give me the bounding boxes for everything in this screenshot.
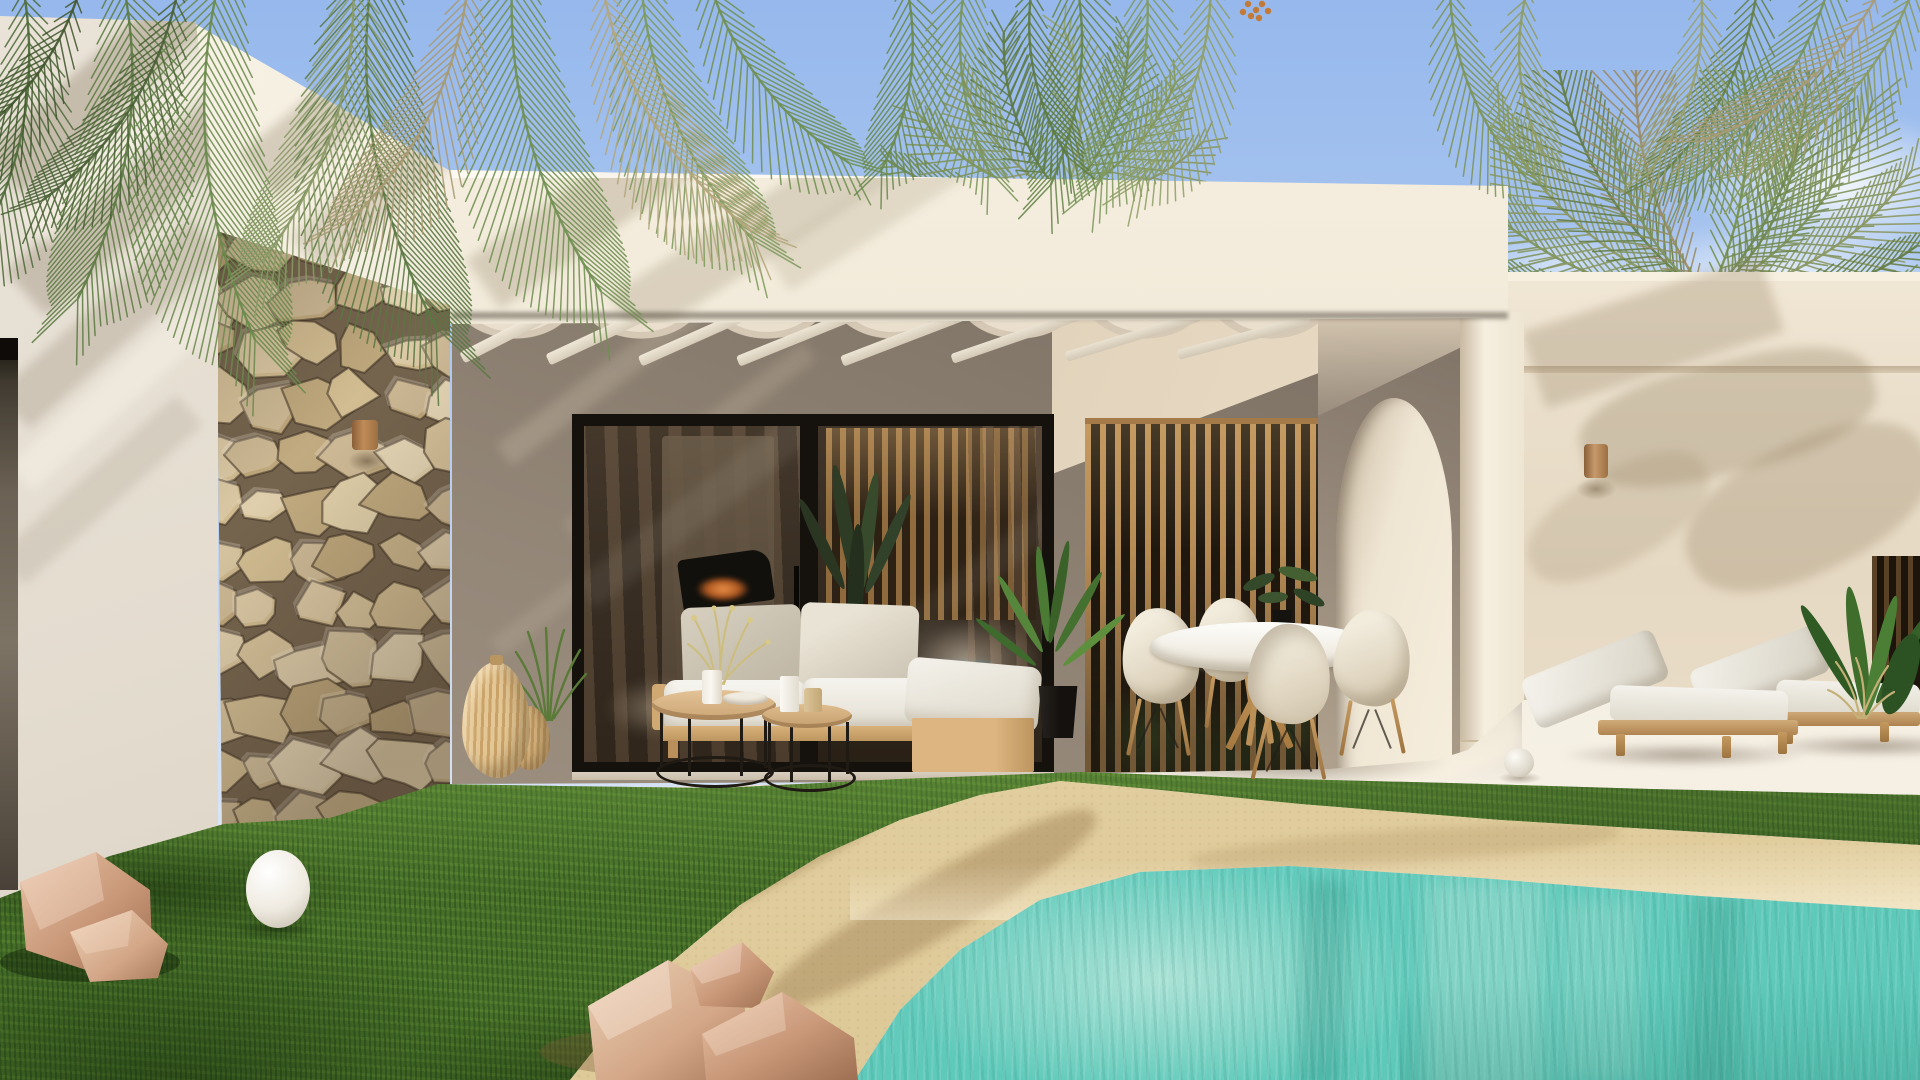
palm-dates	[1248, 13, 1254, 19]
palm-frond	[1622, 0, 1775, 219]
palm-dates	[1256, 15, 1262, 21]
palm-dates	[1259, 1, 1265, 7]
palm-frond	[1429, 0, 1558, 217]
palm-canopy	[0, 0, 1920, 1080]
palm-frond	[1103, 0, 1236, 226]
palm-dates	[1253, 7, 1259, 13]
palm-dates	[1240, 9, 1246, 15]
palm-dates	[1265, 8, 1271, 14]
palm-frond	[1488, 0, 1570, 194]
palm-dates	[1245, 1, 1251, 7]
villa-scene	[0, 0, 1920, 1080]
